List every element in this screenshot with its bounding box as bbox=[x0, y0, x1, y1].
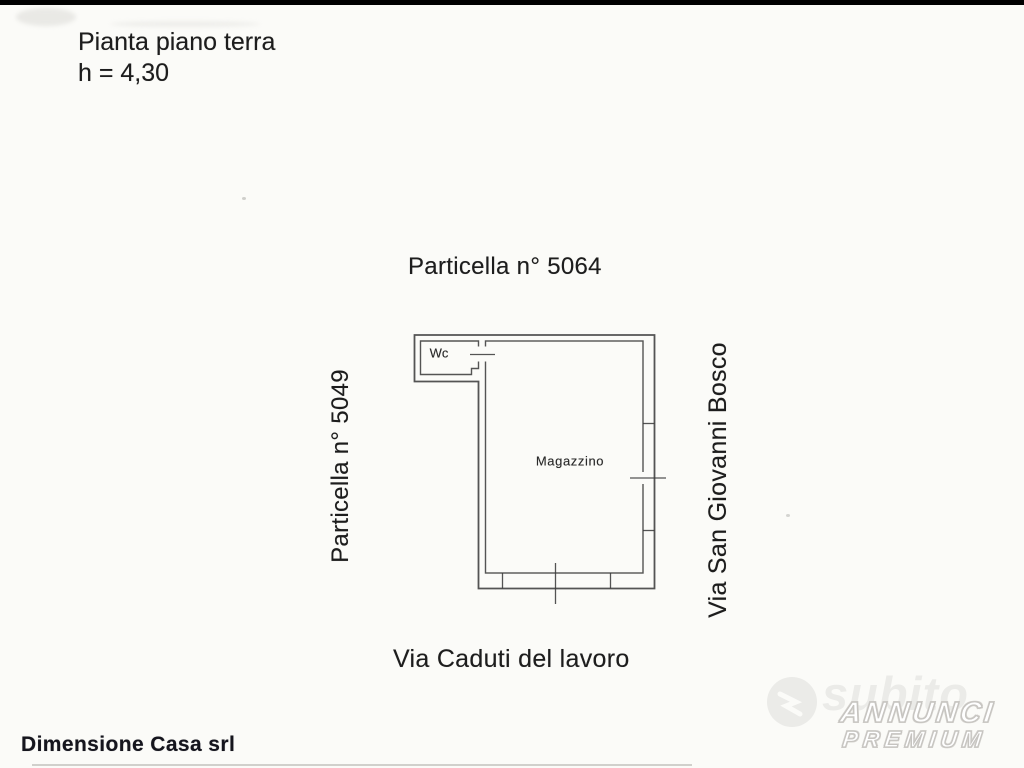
scan-top-black-bar bbox=[0, 0, 1024, 5]
room-label-wc: Wc bbox=[430, 346, 449, 361]
badge-line-premium: PREMIUM bbox=[836, 727, 994, 751]
scan-speck bbox=[242, 197, 246, 200]
floorplan-drawing: Wc Magazzino bbox=[390, 315, 680, 615]
plan-header: Pianta piano terra h = 4,30 bbox=[78, 27, 275, 89]
plan-height-note: h = 4,30 bbox=[78, 58, 275, 89]
street-label-right: Via San Giovanni Bosco bbox=[704, 328, 734, 632]
room-label-magazzino: Magazzino bbox=[536, 454, 604, 469]
plan-title: Pianta piano terra bbox=[78, 27, 275, 58]
adjacent-parcel-label: Particella n° 5049 bbox=[327, 346, 357, 586]
annunci-premium-badge: ANNUNCI PREMIUM bbox=[836, 698, 997, 751]
scan-bottom-line bbox=[32, 764, 692, 766]
scan-smudge bbox=[16, 8, 76, 26]
street-label-bottom: Via Caduti del lavoro bbox=[393, 645, 630, 674]
outer-wall bbox=[415, 335, 655, 589]
scan-speck bbox=[786, 514, 790, 517]
parcel-number-label: Particella n° 5064 bbox=[408, 253, 602, 281]
scanned-floorplan-page: Pianta piano terra h = 4,30 Particella n… bbox=[0, 0, 1024, 768]
agency-name: Dimensione Casa srl bbox=[21, 733, 235, 757]
badge-line-annunci: ANNUNCI bbox=[839, 698, 997, 728]
subito-logo-icon bbox=[766, 676, 818, 728]
